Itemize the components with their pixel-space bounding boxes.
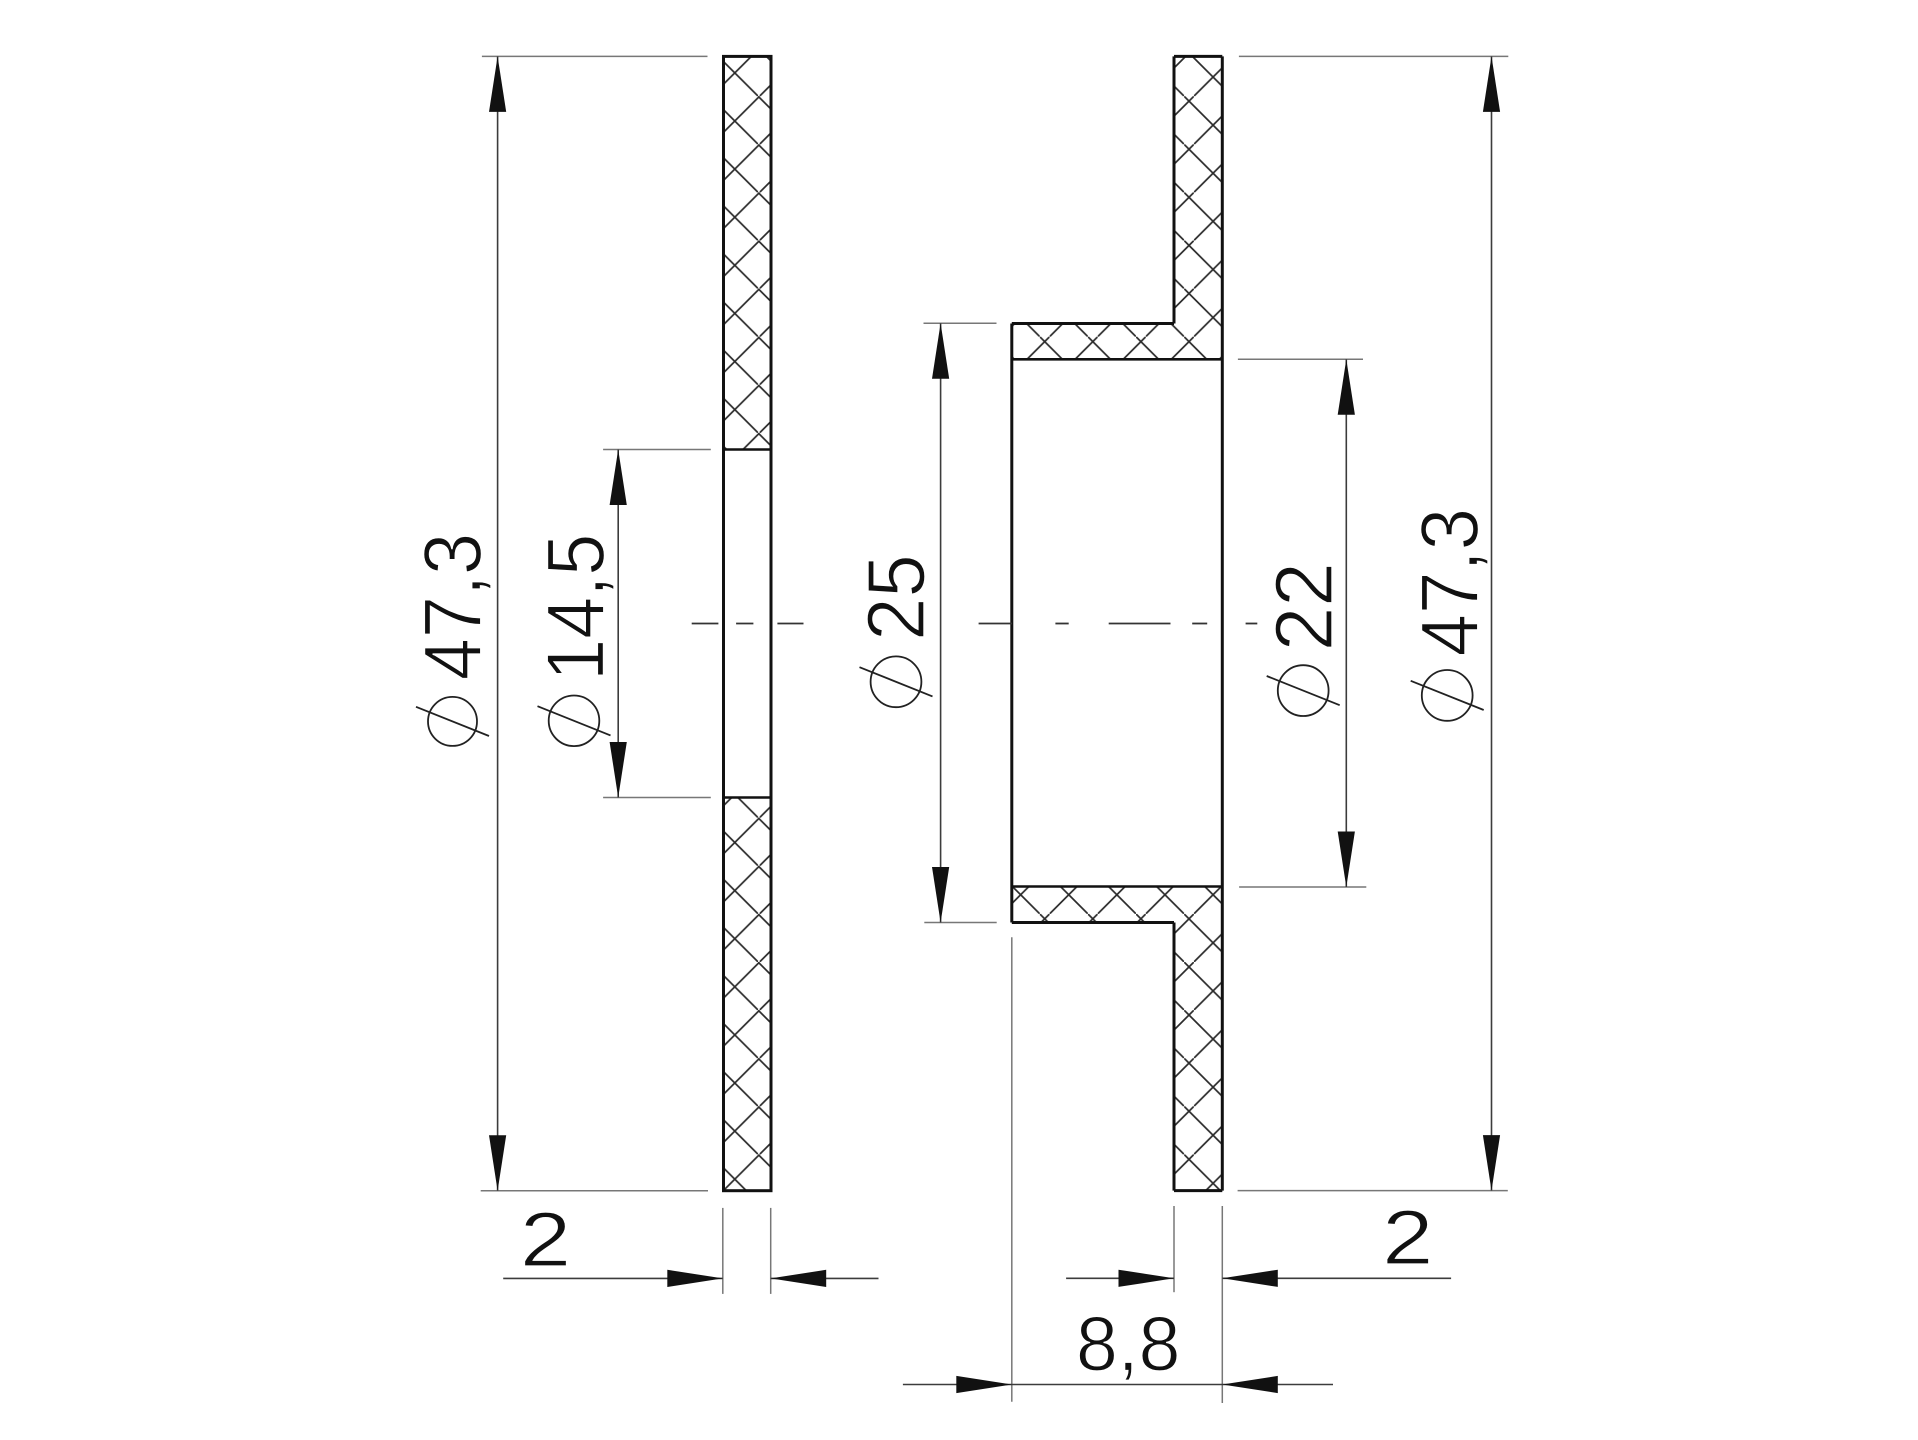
svg-text:25: 25	[851, 554, 942, 640]
svg-text:14,5: 14,5	[531, 534, 622, 681]
svg-text:2: 2	[520, 1197, 572, 1283]
svg-text:2: 2	[1382, 1195, 1434, 1281]
svg-text:47,3: 47,3	[408, 533, 499, 680]
svg-text:47,3: 47,3	[1404, 508, 1495, 656]
svg-text:22: 22	[1259, 562, 1350, 651]
svg-text:8,8: 8,8	[1076, 1301, 1180, 1387]
